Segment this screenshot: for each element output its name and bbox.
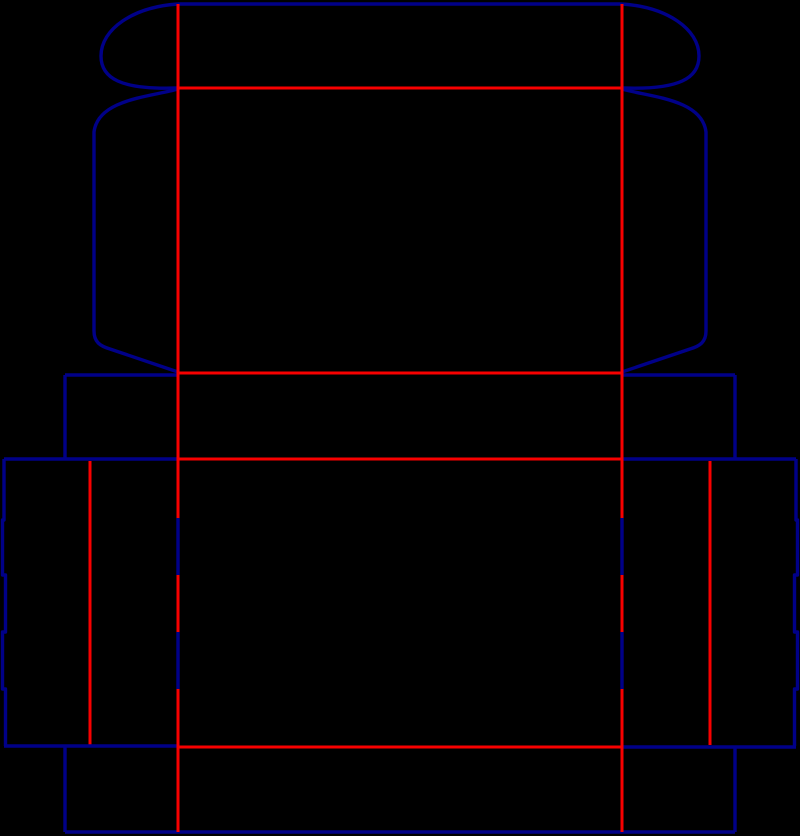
lid-left-side-flap-cut: [94, 89, 178, 372]
right-notched-edge-cut: [795, 459, 798, 746]
lid-right-side-flap-cut: [622, 89, 706, 372]
tuck-flap-left-ear-cut: [101, 4, 178, 88]
dieline-viewport: [0, 0, 800, 836]
tuck-flap-right-ear-cut: [622, 4, 699, 88]
dieline-svg: [0, 0, 800, 836]
left-notched-edge-cut: [3, 459, 6, 746]
